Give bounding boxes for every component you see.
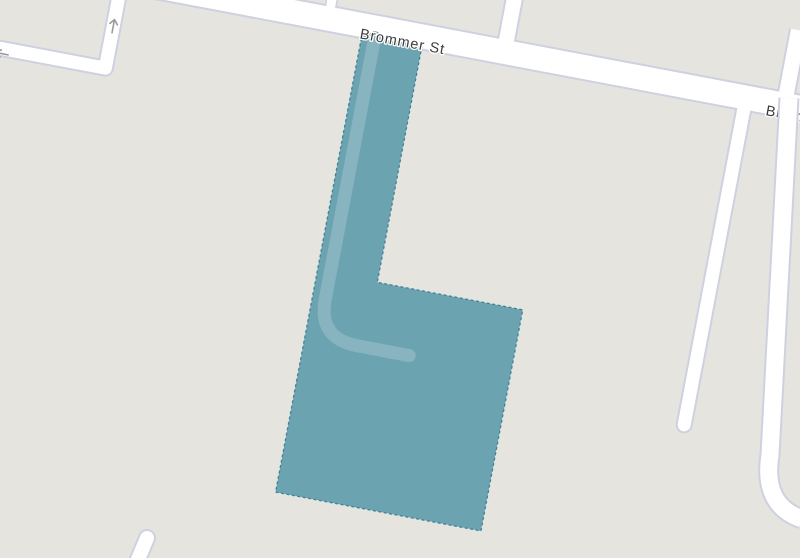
map-canvas[interactable]: Brommer St Brommer St <box>0 0 800 558</box>
map-viewport[interactable]: Brommer St Brommer St <box>0 0 800 558</box>
